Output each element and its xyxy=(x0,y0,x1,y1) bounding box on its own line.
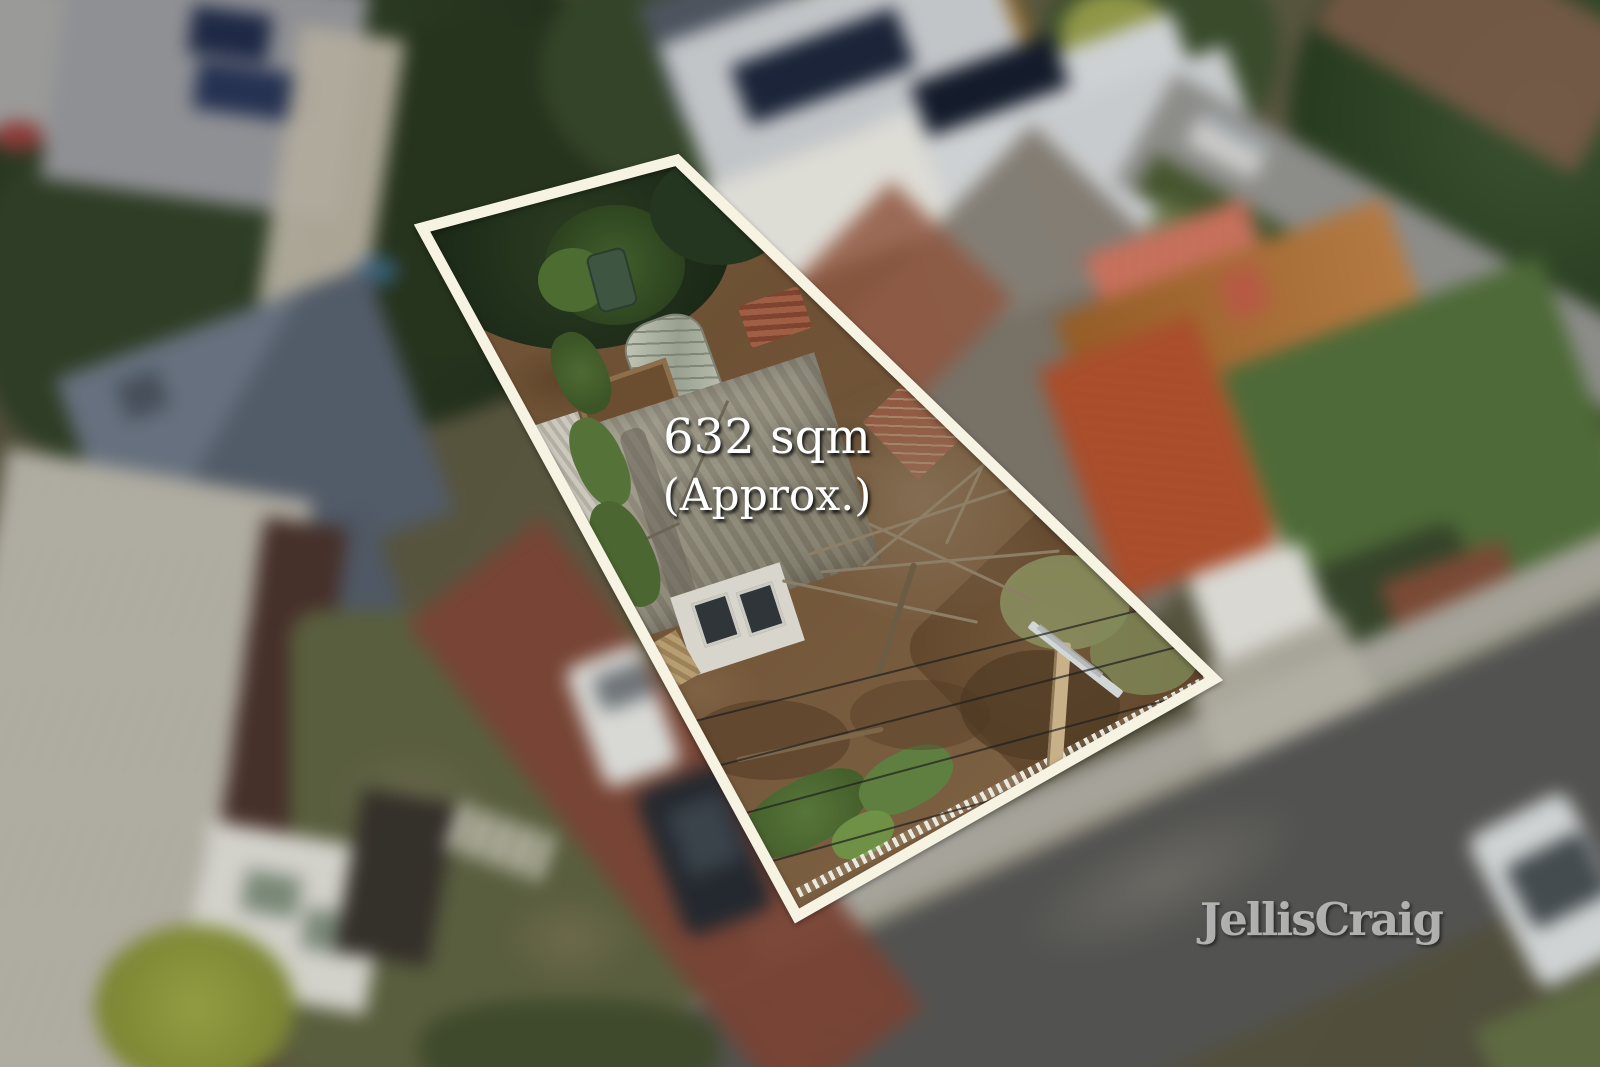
red-object xyxy=(0,122,42,150)
area-size-text: 632 sqm xyxy=(517,408,1017,466)
area-approx-text: (Approx.) xyxy=(517,466,1017,526)
dark-shrubs-bottom xyxy=(420,1000,720,1067)
aerial-photo: 632 sqm (Approx.) JellisCraig xyxy=(0,0,1600,1067)
area-label: 632 sqm (Approx.) xyxy=(517,408,1017,526)
leaf-litter xyxy=(850,680,990,750)
agency-watermark: JellisCraig xyxy=(1200,893,1442,946)
